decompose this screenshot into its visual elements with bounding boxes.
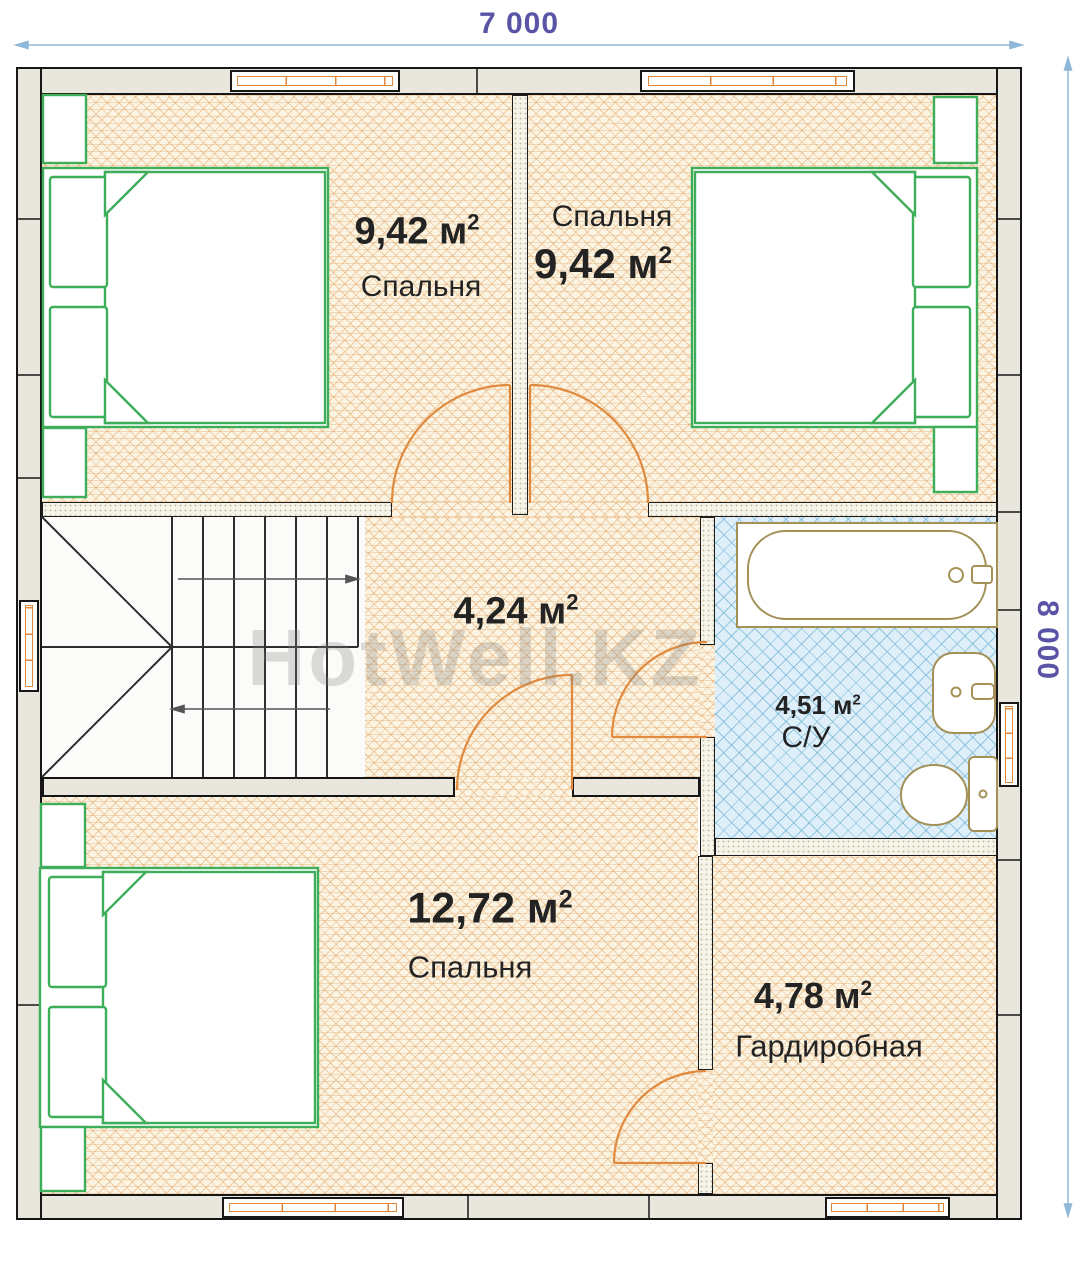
room-name-bedroom-bottom: Спальня bbox=[408, 952, 533, 983]
bed-icon bbox=[40, 868, 318, 1127]
bed-icon bbox=[43, 168, 328, 427]
room-area-hall: 4,24 м2 bbox=[454, 592, 579, 631]
room-area-bedroom-top-right: 9,42 м2 bbox=[534, 243, 672, 285]
room-name-wardrobe: Гардиробная bbox=[735, 1031, 923, 1062]
sink-icon bbox=[933, 653, 995, 733]
door-arc bbox=[614, 1071, 706, 1163]
room-name-bedroom-top-left: Спальня bbox=[361, 272, 482, 302]
room-name-bathroom: С/У bbox=[781, 723, 830, 753]
room-name-bedroom-top-right: Спальня bbox=[552, 202, 673, 232]
dimension-height-label: 8 000 bbox=[1030, 600, 1064, 680]
doors bbox=[392, 385, 707, 1163]
door-arc bbox=[530, 385, 648, 503]
room-area-wardrobe: 4,78 м2 bbox=[754, 978, 872, 1014]
bathtub-icon bbox=[737, 523, 997, 627]
toilet-icon bbox=[901, 757, 997, 831]
bed-icon bbox=[692, 168, 977, 427]
room-area-bathroom: 4,51 м2 bbox=[775, 692, 860, 718]
door-arc bbox=[392, 385, 510, 503]
dimension-width-label: 7 000 bbox=[479, 7, 559, 41]
room-area-bedroom-top-left: 9,42 м2 bbox=[355, 212, 480, 251]
floor-plan: HotWell.KZ 7 000 8 000 9,42 м2 Спальня С… bbox=[0, 0, 1089, 1280]
room-area-bedroom-bottom: 12,72 м2 bbox=[407, 887, 572, 930]
